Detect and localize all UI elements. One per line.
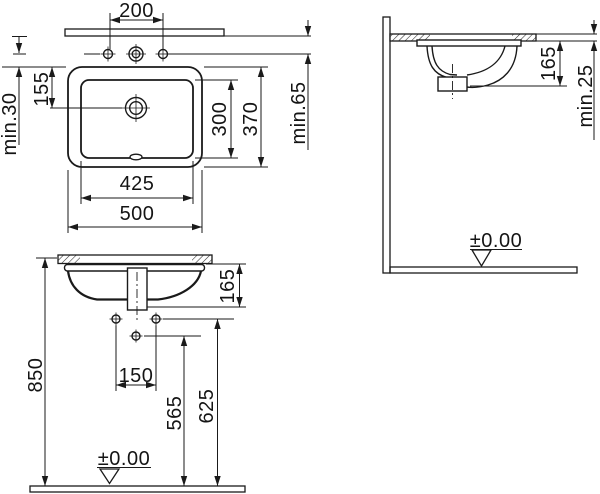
dim-200: 200 xyxy=(110,0,163,49)
front-countertop-section xyxy=(58,255,212,264)
front-dim-625: 625 xyxy=(196,319,218,486)
dim-300-label: 300 xyxy=(209,102,231,137)
tap-hole-left-icon xyxy=(101,47,116,62)
side-datum-label: ±0.00 xyxy=(470,230,522,252)
dim-200-label: 200 xyxy=(119,0,154,22)
dim-500-label: 500 xyxy=(120,203,155,225)
side-basin-section xyxy=(417,40,521,99)
waste-hole-icon xyxy=(122,94,150,122)
bowl-right-inner xyxy=(467,46,505,75)
dim-425-label: 425 xyxy=(120,173,155,195)
fixing-hole-center-icon xyxy=(130,330,143,343)
side-dim-min25: min.25 xyxy=(575,20,597,140)
front-dim-850: 850 xyxy=(25,258,57,486)
side-dim-165: 165 xyxy=(470,41,567,86)
side-floor-section xyxy=(390,267,577,273)
dim-370-label: 370 xyxy=(240,102,262,137)
dim-min65: min.65 xyxy=(288,20,310,150)
front-dim-625-label: 625 xyxy=(196,389,218,424)
front-fixing-holes xyxy=(110,313,235,343)
front-dim-850-label: 850 xyxy=(25,358,47,393)
side-view: 165 min.25 ±0.00 xyxy=(383,17,597,273)
side-wall-section xyxy=(383,17,390,273)
front-floor-datum: ±0.00 xyxy=(97,448,151,484)
datum-triangle-icon xyxy=(100,469,119,484)
fixing-hole-left-icon xyxy=(110,313,123,326)
front-view: 165 150 565 625 850 ±0.00 xyxy=(25,255,246,492)
fixing-hole-right-icon xyxy=(150,313,163,326)
bowl-left-outer xyxy=(427,46,453,78)
datum-triangle-icon xyxy=(472,250,491,266)
washbasin-installation-drawing: 200 155 min.30 300 370 xyxy=(0,0,600,494)
front-datum-label: ±0.00 xyxy=(98,448,150,470)
technical-drawing-sheet: 200 155 min.30 300 370 xyxy=(0,0,600,494)
front-dim-165-label: 165 xyxy=(217,269,239,304)
basin-rim-flange xyxy=(417,40,521,46)
front-basin-outline xyxy=(65,265,205,323)
front-dim-565-label: 565 xyxy=(164,396,186,431)
plan-basin-outline xyxy=(68,67,202,167)
front-dim-565: 565 xyxy=(164,336,186,486)
dim-min65-label: min.65 xyxy=(288,81,310,144)
side-dim-165-label: 165 xyxy=(538,46,560,81)
front-floor-section xyxy=(30,486,245,492)
tap-hole-center-icon xyxy=(126,44,146,64)
side-dim-min25-label: min.25 xyxy=(575,64,597,127)
overflow-slot-icon xyxy=(130,154,142,160)
front-dim-150-label: 150 xyxy=(119,365,154,387)
dim-155-label: 155 xyxy=(31,72,53,107)
dim-155: 155 xyxy=(31,67,122,108)
basin-outer-rect xyxy=(68,67,202,167)
plan-wall-strip xyxy=(65,29,224,36)
side-floor-datum: ±0.00 xyxy=(470,230,522,266)
dim-min30-label: min.30 xyxy=(0,92,21,155)
plan-view: 200 155 min.30 300 370 xyxy=(0,0,311,233)
plan-tap-holes xyxy=(101,44,171,64)
